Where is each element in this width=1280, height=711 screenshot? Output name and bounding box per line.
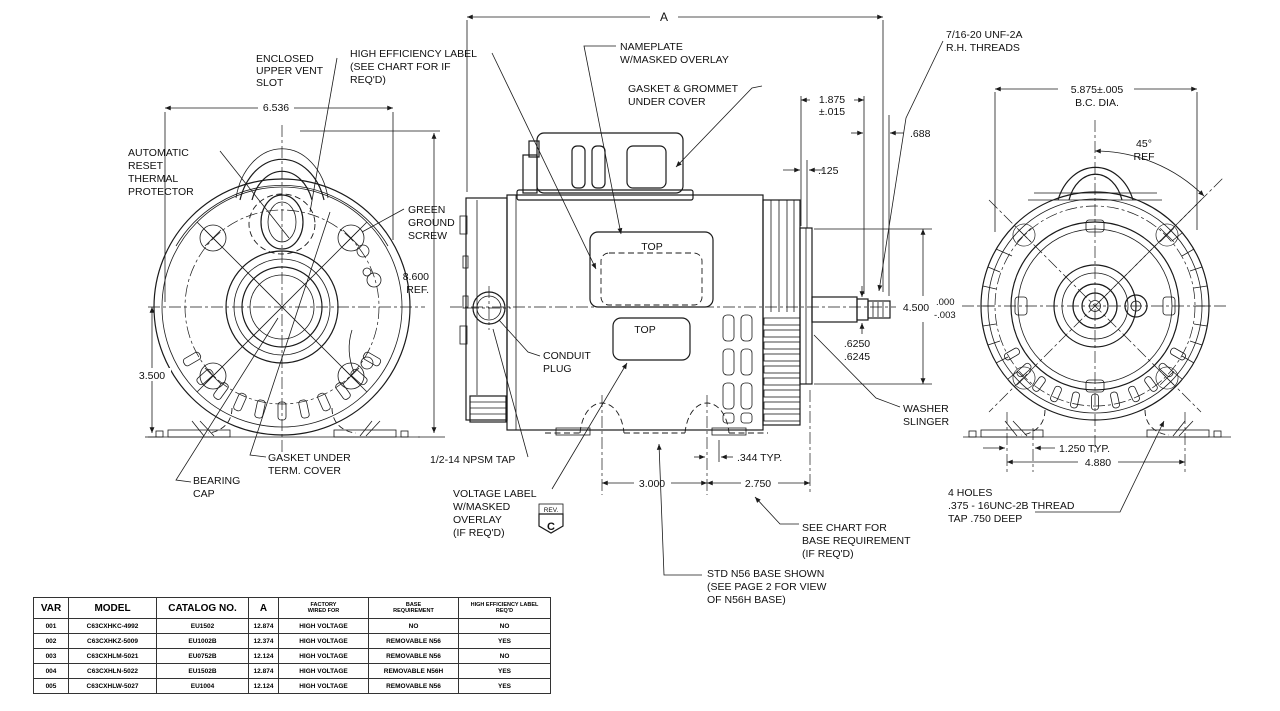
label-npsm-tap: 1/2-14 NPSM TAP [430, 454, 515, 466]
table-cell: HIGH VOLTAGE [279, 619, 369, 634]
table-cell: NO [459, 619, 551, 634]
table-cell: 005 [34, 679, 69, 694]
dim-shaft-dia-min: .6245 [844, 351, 870, 363]
label-washer-slinger: WASHER [903, 403, 949, 415]
svg-text:R.H. THREADS: R.H. THREADS [946, 42, 1020, 54]
header-factory-wired: FACTORY WIRED FOR [279, 598, 369, 619]
table-cell: YES [459, 664, 551, 679]
header-high-eff: HIGH EFFICIENCY LABEL REQ'D [459, 598, 551, 619]
table-cell: NO [369, 619, 459, 634]
dim-3500: 3.500 [139, 370, 165, 382]
table-cell: YES [459, 634, 551, 649]
label-green-screw: GREEN [408, 204, 445, 216]
table-cell: 002 [34, 634, 69, 649]
table-row: 004 C63CXHLN-5022 EU1502B 12.874 HIGH VO… [34, 664, 551, 679]
svg-text:.375 - 16UNC-2B THREAD: .375 - 16UNC-2B THREAD [948, 500, 1075, 512]
rev-letter: C [547, 521, 555, 533]
svg-text:THERMAL: THERMAL [128, 173, 178, 185]
table-cell: REMOVABLE N56 [369, 679, 459, 694]
table-cell: HIGH VOLTAGE [279, 649, 369, 664]
svg-text:GROUND: GROUND [408, 217, 455, 229]
table-row: 003 C63CXHLM-5021 EU0752B 12.124 HIGH VO… [34, 649, 551, 664]
dim-8600: 8.600 [403, 271, 429, 283]
dim-45-ref: REF [1134, 151, 1155, 163]
table-cell: HIGH VOLTAGE [279, 664, 369, 679]
screw-icon [357, 245, 369, 257]
table-cell: REMOVABLE N56 [369, 634, 459, 649]
variation-spec-table: VAR MODEL CATALOG NO. A FACTORY WIRED FO… [33, 597, 551, 694]
motor-body [507, 195, 763, 430]
svg-text:REQ'D): REQ'D) [350, 74, 386, 86]
table-cell: 12.874 [249, 664, 279, 679]
side-view: TOP TOP [450, 133, 955, 495]
table-cell: 12.124 [249, 649, 279, 664]
leader-lines [176, 41, 1164, 575]
dim-4500-tolm: -.003 [934, 310, 956, 321]
svg-text:TAP .750 DEEP: TAP .750 DEEP [948, 513, 1022, 525]
ribbed-end [763, 200, 800, 425]
nameplate-area: TOP [590, 232, 713, 307]
dim-bc-dia-label: B.C. DIA. [1075, 97, 1119, 109]
table-cell: YES [459, 679, 551, 694]
label-nameplate: NAMEPLATE [620, 41, 683, 53]
front-feet [963, 410, 1231, 437]
dimensions: A 6.536 3.500 8.600 REF. 1.875 ±.015 .68… [133, 8, 1223, 490]
screw-icon [363, 268, 371, 276]
dim-6536: 6.536 [263, 102, 289, 114]
dim-4880: 4.880 [1085, 457, 1111, 469]
table-cell: C63CXHLN-5022 [69, 664, 157, 679]
dim-1250: 1.250 TYP. [1059, 443, 1110, 455]
label-conduit-plug: CONDUIT [543, 350, 591, 362]
dim-688: .688 [910, 128, 931, 140]
gasket-grommet-opening [627, 146, 666, 188]
label-voltage: VOLTAGE LABEL [453, 488, 537, 500]
table-cell: C63CXHKC-4992 [69, 619, 157, 634]
voltage-label-area: TOP [613, 318, 690, 360]
dim-344: .344 TYP. [737, 452, 782, 464]
label-gasket-grommet: GASKET & GROMMET [628, 83, 739, 95]
svg-text:SLINGER: SLINGER [903, 416, 950, 428]
dim-3000: 3.000 [639, 478, 665, 490]
label-enclosed-vent: ENCLOSED [256, 53, 314, 65]
table-cell: EU0752B [157, 649, 249, 664]
header-model: MODEL [69, 598, 157, 619]
table-row: 001 C63CXHKC-4992 EU1502 12.874 HIGH VOL… [34, 619, 551, 634]
header-a: A [249, 598, 279, 619]
svg-text:W/MASKED OVERLAY: W/MASKED OVERLAY [620, 54, 729, 66]
conduit-plug [467, 286, 511, 330]
table-cell: EU1002B [157, 634, 249, 649]
label-gasket-term: GASKET UNDER [268, 452, 351, 464]
table-cell: HIGH VOLTAGE [279, 679, 369, 694]
terminal-end-cover [460, 198, 507, 422]
shaft [812, 297, 890, 322]
dim-bc-dia: 5.875±.005 [1071, 84, 1124, 96]
table-cell: REMOVABLE N56 [369, 649, 459, 664]
mounting-feet [148, 408, 420, 437]
table-cell: EU1004 [157, 679, 249, 694]
table-cell: 12.374 [249, 634, 279, 649]
label-bearing-cap: BEARING [193, 475, 240, 487]
svg-text:TERM. COVER: TERM. COVER [268, 465, 341, 477]
svg-text:(SEE CHART FOR IF: (SEE CHART FOR IF [350, 61, 451, 73]
table-cell: 001 [34, 619, 69, 634]
table-cell: C63CXHLM-5021 [69, 649, 157, 664]
dim-1875-tol: ±.015 [819, 106, 845, 118]
table-cell: 003 [34, 649, 69, 664]
svg-text:RESET: RESET [128, 160, 164, 172]
header-catalog: CATALOG NO. [157, 598, 249, 619]
svg-text:SCREW: SCREW [408, 230, 447, 242]
dim-125: .125 [818, 165, 839, 177]
dim-2750: 2.750 [745, 478, 771, 490]
table-cell: 12.124 [249, 679, 279, 694]
table-row: 005 C63CXHLW-5027 EU1004 12.124 HIGH VOL… [34, 679, 551, 694]
dim-8600-ref: REF. [406, 284, 429, 296]
svg-text:OF N56H BASE): OF N56H BASE) [707, 594, 786, 606]
header-base-req: BASE REQUIREMENT [369, 598, 459, 619]
svg-text:(IF REQ'D): (IF REQ'D) [802, 548, 854, 560]
table-cell: C63CXHLW-5027 [69, 679, 157, 694]
table-cell: NO [459, 649, 551, 664]
table-cell: HIGH VOLTAGE [279, 634, 369, 649]
dim-shaft-dia-max: .6250 [844, 338, 870, 350]
header-var: VAR [34, 598, 69, 619]
front-view [962, 120, 1231, 470]
table-cell: REMOVABLE N56H [369, 664, 459, 679]
label-std-base: STD N56 BASE SHOWN [707, 568, 824, 580]
table-cell: EU1502B [157, 664, 249, 679]
label-thermal-protector: AUTOMATIC [128, 147, 189, 159]
dim-4500-tolp: .000 [936, 297, 955, 308]
label-threads: 7/16-20 UNF-2A [946, 29, 1022, 41]
table-cell: 12.874 [249, 619, 279, 634]
top-marking-nameplate: TOP [641, 241, 662, 253]
label-see-chart: SEE CHART FOR [802, 522, 887, 534]
svg-text:UNDER COVER: UNDER COVER [628, 96, 706, 108]
revision-symbol: REV. C [539, 504, 563, 533]
dim-a: A [660, 10, 668, 24]
svg-text:SLOT: SLOT [256, 77, 284, 89]
svg-text:UPPER VENT: UPPER VENT [256, 65, 324, 77]
rear-view [148, 125, 425, 455]
table-cell: 004 [34, 664, 69, 679]
table-cell: C63CXHKZ-5009 [69, 634, 157, 649]
svg-text:(SEE PAGE 2 FOR VIEW: (SEE PAGE 2 FOR VIEW [707, 581, 827, 593]
label-high-efficiency: HIGH EFFICIENCY LABEL [350, 48, 477, 60]
table-row: 002 C63CXHKZ-5009 EU1002B 12.374 HIGH VO… [34, 634, 551, 649]
dim-45: 45° [1136, 138, 1152, 150]
svg-text:OVERLAY: OVERLAY [453, 514, 502, 526]
table-cell: EU1502 [157, 619, 249, 634]
dim-1875: 1.875 [819, 94, 845, 106]
svg-text:CAP: CAP [193, 488, 215, 500]
terminal-box [517, 133, 693, 200]
side-vent-slots [723, 315, 752, 423]
rev-text: REV. [544, 507, 559, 514]
label-4-holes: 4 HOLES [948, 487, 992, 499]
motor-dimension-drawing: TOP TOP [0, 0, 1280, 711]
dim-4500: 4.500 [903, 302, 929, 314]
svg-text:BASE REQUIREMENT: BASE REQUIREMENT [802, 535, 911, 547]
top-marking-voltage: TOP [634, 324, 655, 336]
svg-text:W/MASKED: W/MASKED [453, 501, 511, 513]
svg-text:PLUG: PLUG [543, 363, 572, 375]
svg-text:PROTECTOR: PROTECTOR [128, 186, 194, 198]
svg-text:(IF REQ'D): (IF REQ'D) [453, 527, 505, 539]
